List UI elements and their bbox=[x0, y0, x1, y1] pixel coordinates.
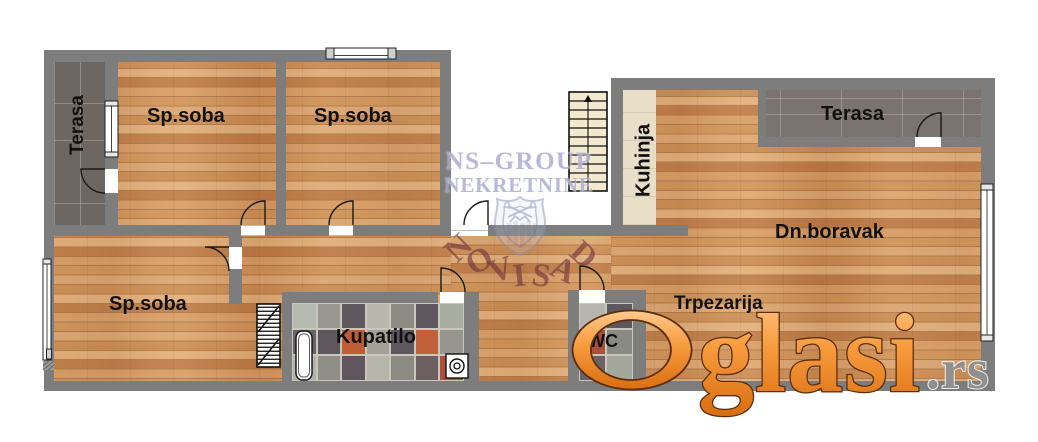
svg-text:.rs: .rs bbox=[926, 339, 990, 401]
svg-text:glasi: glasi bbox=[698, 292, 921, 416]
